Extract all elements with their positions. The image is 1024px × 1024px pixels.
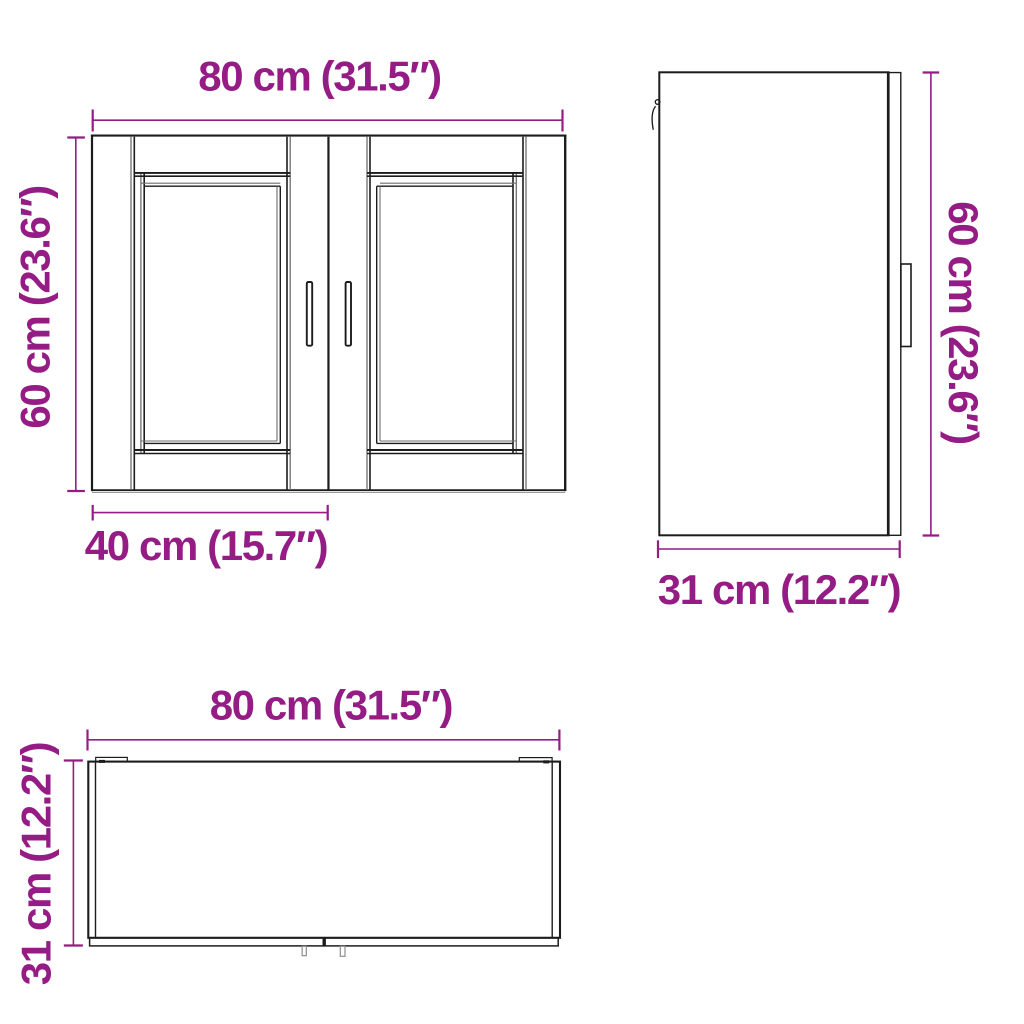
svg-text:80 cm (31.5″): 80 cm (31.5″): [210, 682, 452, 729]
svg-text:60 cm (23.6″): 60 cm (23.6″): [940, 201, 987, 443]
svg-text:31 cm (12.2″): 31 cm (12.2″): [13, 743, 60, 985]
svg-text:31 cm (12.2″): 31 cm (12.2″): [658, 566, 900, 613]
svg-text:40 cm (15.7″): 40 cm (15.7″): [85, 522, 327, 569]
svg-text:60 cm (23.6″): 60 cm (23.6″): [11, 186, 58, 428]
svg-text:80 cm (31.5″): 80 cm (31.5″): [198, 52, 440, 99]
